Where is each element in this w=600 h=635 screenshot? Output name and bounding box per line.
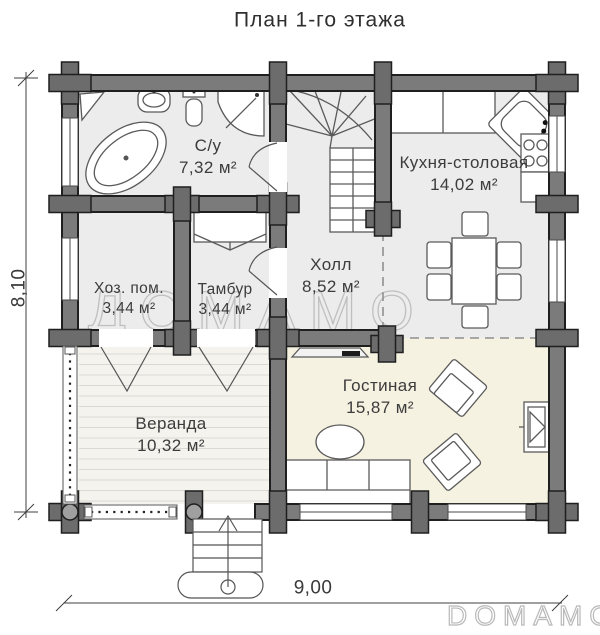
railing-bottom bbox=[84, 505, 177, 519]
room-name: Хоз. пом. bbox=[94, 279, 164, 299]
room-label-veranda: Веранда 10,32 м² bbox=[135, 413, 206, 457]
chair bbox=[462, 306, 488, 328]
sofa bbox=[286, 460, 410, 504]
post-icon bbox=[186, 504, 202, 520]
room-area: 10,32 м² bbox=[135, 435, 206, 457]
room-area: 3,44 м² bbox=[197, 300, 252, 320]
room-label-kitchen: Кухня-столовая 14,02 м² bbox=[400, 152, 529, 196]
bathtub-drain-icon bbox=[124, 156, 129, 161]
window bbox=[549, 240, 565, 302]
window bbox=[62, 118, 78, 186]
room-area: 8,52 м² bbox=[302, 276, 360, 298]
entrance-landing bbox=[178, 572, 263, 598]
room-name: С/у bbox=[179, 135, 237, 157]
fireplace bbox=[519, 402, 549, 452]
chair bbox=[497, 242, 521, 268]
room-area: 3,44 м² bbox=[94, 299, 164, 319]
room-label-living: Гостиная 15,87 м² bbox=[343, 375, 418, 419]
window bbox=[448, 504, 526, 520]
room-area: 15,87 м² bbox=[343, 397, 418, 419]
floor-plan-page: ДОМАМО bbox=[0, 0, 600, 635]
room-name: Кухня-столовая bbox=[400, 152, 529, 174]
page-title: План 1-го этажа bbox=[234, 6, 406, 33]
window bbox=[62, 238, 78, 300]
coffee-table bbox=[316, 425, 364, 459]
dining-table bbox=[452, 238, 496, 304]
room-name: Холл bbox=[302, 254, 360, 276]
tv bbox=[292, 348, 368, 357]
kitchen-counter bbox=[391, 91, 495, 133]
room-label-hall: Холл 8,52 м² bbox=[302, 254, 360, 298]
chair bbox=[427, 274, 451, 300]
wall-top bbox=[62, 75, 565, 91]
room-name: Тамбур bbox=[197, 280, 252, 300]
chair bbox=[427, 242, 451, 268]
chair bbox=[462, 212, 488, 236]
window bbox=[549, 116, 565, 172]
room-area: 7,32 м² bbox=[179, 157, 237, 179]
room-label-utility: Хоз. пом. 3,44 м² bbox=[94, 279, 164, 319]
chair bbox=[497, 274, 521, 300]
room-name: Веранда bbox=[135, 413, 206, 435]
toilet bbox=[183, 88, 205, 126]
dimension-label-horizontal: 9,00 bbox=[294, 577, 333, 602]
post-icon bbox=[62, 504, 78, 520]
room-label-tambour: Тамбур 3,44 м² bbox=[197, 280, 252, 320]
room-name: Гостиная bbox=[343, 375, 418, 397]
window bbox=[300, 504, 392, 520]
floor-plan-drawing: ДОМАМО bbox=[0, 0, 600, 635]
railing-left bbox=[63, 346, 77, 504]
dimension-label-vertical: 8,10 bbox=[8, 269, 33, 308]
room-area: 14,02 м² bbox=[400, 174, 529, 196]
room-label-bathroom: С/у 7,32 м² bbox=[179, 135, 237, 179]
watermark-corner: DOMAMO bbox=[447, 600, 600, 631]
